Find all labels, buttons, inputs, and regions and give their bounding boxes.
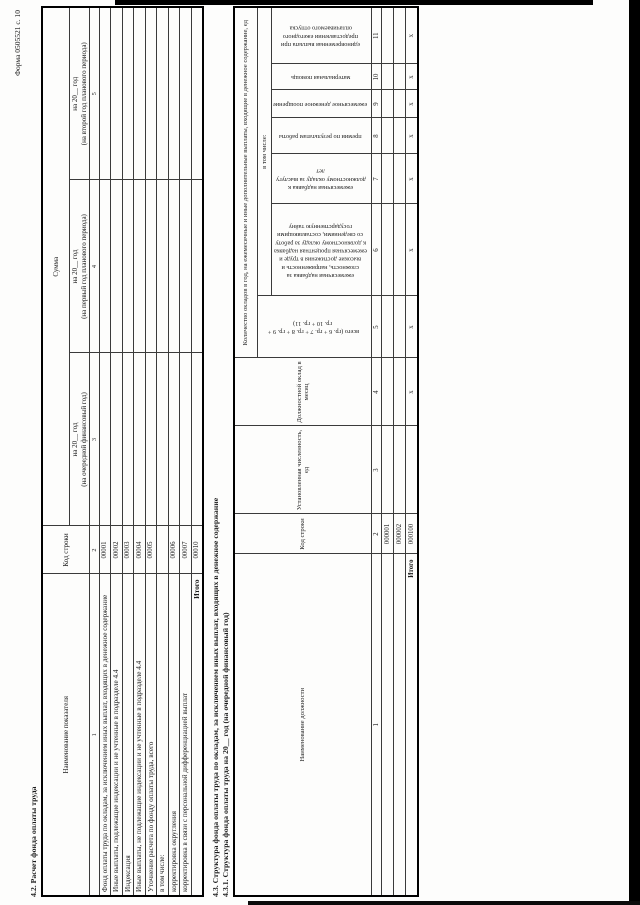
header-row-1: Наименование показателя Код строки Сумма [42,7,70,896]
x-mark: х [406,90,419,118]
sum-cell [191,180,203,353]
indicator-label: в том числе: [157,574,168,896]
x-mark: х [406,118,419,154]
col-header-material-aid: материальная помощь [272,64,372,90]
col-num: 11 [372,7,382,64]
x-mark: х [406,7,419,64]
table-row: 000002 [394,7,406,896]
table-row: 000001 [382,7,394,896]
sum-cell [157,180,168,353]
col-header-vacation-payment: единовременная выплата при предоставлени… [272,7,372,64]
line-code: 00004 [134,526,145,574]
empty-cell [406,426,419,514]
col-num: 8 [372,118,382,154]
line-code [157,526,168,574]
col-header-staff-count: Установленная численность, ед [234,426,372,514]
scan-edge-shadow-bottom [629,0,640,905]
year3-line2: (на второй год планового периода) [80,10,88,178]
indicator-label: Индексация [122,574,133,896]
table-row: Иные выплаты, подлежащие индексации и не… [111,7,122,896]
indicator-label: корректировка округления [168,574,179,896]
indicator-label: Иные выплаты, не подлежащие индексации и… [134,574,145,896]
col-header-salary-counts-group: Количество окладов в год, на ежемесячные… [234,7,258,358]
sum-cell [168,353,179,526]
section-4-3-title: 4.3. Структура фонда оплаты труда по окл… [211,8,220,897]
position-name-cell [394,554,406,896]
x-mark: х [406,358,419,426]
table-row: в том числе: [157,7,168,896]
line-code: 000001 [382,514,394,554]
total-row: Итого 000100 х х х х х х х х [406,7,419,896]
col-header-position-name: Наименование должности [234,554,372,896]
col-header-complexity-allowance: ежемесячная надбавка за сложность, напря… [272,204,372,296]
total-line-code: 000100 [406,514,419,554]
position-name-cell [382,554,394,896]
sum-cell [122,353,133,526]
form-number: Форма 0505521 с. 10 [13,8,22,897]
indicator-label: корректировка в связи с персональной диф… [180,574,191,896]
col-header-sum: Сумма [42,7,70,526]
table-row: корректировка в связи с персональной диф… [180,7,191,896]
section-4-2-title: 4.2. Расчет фонда оплаты труда [29,8,38,897]
sum-cell [122,7,133,180]
col-header-line-code: Код строки [42,526,90,574]
year2-line2: (на первый год планового периода) [80,183,88,351]
sum-cell [157,7,168,180]
col-num: 3 [90,353,100,526]
line-code: 00006 [168,526,179,574]
sum-cell [111,7,122,180]
year3-line1: на 20__ год [71,10,79,178]
col-header-total-text: всего (гр. 6 + гр. 7 + гр. 8 + гр. 9 + г… [264,319,362,335]
col-num: 2 [372,514,382,554]
col-header-indicator-name: Наименование показателя [42,574,90,896]
sum-cell [100,7,111,180]
year2-line1: на 20__ год [71,183,79,351]
scan-edge-shadow-right [115,0,593,5]
col-num: 3 [372,426,382,514]
page-content: Форма 0505521 с. 10 4.2. Расчет фонда оп… [0,0,419,905]
line-code: 00002 [111,526,122,574]
col-header-seniority-allowance: ежемесячная надбавка к должностному окла… [272,154,372,204]
x-mark: х [406,204,419,296]
table-row: Индексация 00003 [122,7,133,896]
table-row: Иные выплаты, не подлежащие индексации и… [134,7,145,896]
col-num: 7 [372,154,382,204]
year1-line2: (на очередной финансовый год) [80,356,88,524]
col-header-total: всего (гр. 6 + гр. 7 + гр. 8 + гр. 9 + г… [258,296,372,358]
sum-cell [100,180,111,353]
col-header-year3: на 20__ год (на второй год планового пер… [70,7,90,180]
sum-cell [145,180,156,353]
col-num: 4 [90,180,100,353]
col-num: 2 [90,526,100,574]
payroll-structure-table: Наименование должности Код строки Устано… [233,6,419,897]
sum-cell [180,7,191,180]
col-header-monthly-salary: Должностной оклад в месяц [234,358,372,426]
sum-cell [157,353,168,526]
column-number-row: 1 2 3 4 5 [90,7,100,896]
col-num: 1 [372,554,382,896]
scan-edge-shadow-left [248,901,640,905]
table-row: Фонд оплаты труда по окладам, за исключе… [100,7,111,896]
x-mark: х [406,64,419,90]
section-4-3-1-title: 4.3.1. Структура фонда оплаты труда на 2… [221,8,230,897]
header-row-1: Наименование должности Код строки Устано… [234,7,258,896]
column-number-row: 1 2 3 4 5 6 7 8 9 10 11 [372,7,382,896]
col-header-including: в том числе: [258,7,272,296]
sum-cell [145,7,156,180]
col-num: 1 [90,574,100,896]
x-mark: х [406,154,419,204]
sum-cell [134,180,145,353]
sum-cell [168,180,179,353]
col-num: 9 [372,90,382,118]
col-num: 4 [372,358,382,426]
sum-cell [168,7,179,180]
sum-cell [122,180,133,353]
sum-cell [134,353,145,526]
table-row: корректировка округления 00006 [168,7,179,896]
col-num: 10 [372,64,382,90]
table-row: Уточнение расчета по фонду оплаты труда,… [145,7,156,896]
line-code: 000002 [394,514,406,554]
sum-cell [111,180,122,353]
sum-cell [191,353,203,526]
payroll-fund-calculation-table: Наименование показателя Код строки Сумма… [41,6,204,897]
total-label: Итого [406,554,419,896]
line-code: 00001 [100,526,111,574]
line-code: 00007 [180,526,191,574]
col-num: 5 [90,7,100,180]
indicator-label: Фонд оплаты труда по окладам, за исключе… [100,574,111,896]
col-header-monthly-incentive: ежемесячное денежное поощрение [272,90,372,118]
col-header-line-code: Код строки [234,514,372,554]
sum-cell [111,353,122,526]
scanned-form-page: Форма 0505521 с. 10 4.2. Расчет фонда оп… [0,0,640,905]
rotated-page: Форма 0505521 с. 10 4.2. Расчет фонда оп… [0,0,640,905]
sum-cell [180,353,191,526]
line-code: 00003 [122,526,133,574]
indicator-label: Иные выплаты, подлежащие индексации и не… [111,574,122,896]
col-num: 6 [372,204,382,296]
year1-line1: на 20__ год [71,356,79,524]
sum-cell [100,353,111,526]
x-mark: х [406,296,419,358]
sum-cell [191,7,203,180]
sum-cell [145,353,156,526]
total-label: Итого [191,574,203,896]
col-header-year2: на 20__ год (на первый год планового пер… [70,180,90,353]
total-row: Итого 00010 [191,7,203,896]
total-line-code: 00010 [191,526,203,574]
line-code: 00005 [145,526,156,574]
col-num: 5 [372,296,382,358]
col-header-year1: на 20__ год (на очередной финансовый год… [70,353,90,526]
indicator-label: Уточнение расчета по фонду оплаты труда,… [145,574,156,896]
sum-cell [180,180,191,353]
sum-cell [134,7,145,180]
col-header-performance-bonus: премии по результатам работы [272,118,372,154]
